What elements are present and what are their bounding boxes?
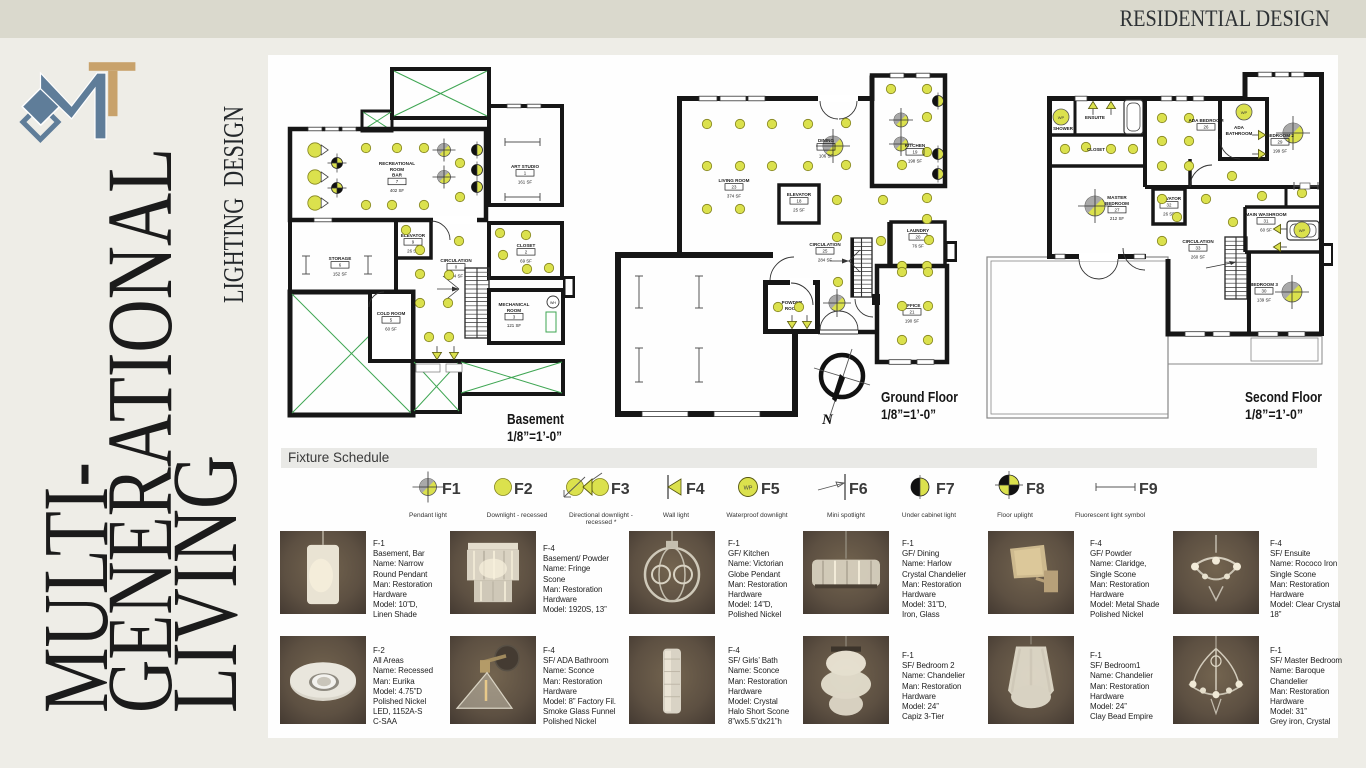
svg-text:Waterproof downlight: Waterproof downlight: [726, 512, 787, 519]
svg-text:BATHROOM: BATHROOM: [1226, 131, 1253, 136]
svg-text:198 SF: 198 SF: [908, 158, 922, 163]
svg-text:F4: F4: [686, 481, 705, 498]
svg-text:KITCHEN: KITCHEN: [905, 143, 926, 148]
svg-text:BAR: BAR: [392, 173, 403, 178]
svg-text:N: N: [821, 412, 834, 428]
svg-text:Mini spotlight: Mini spotlight: [827, 512, 865, 519]
svg-text:69 SF: 69 SF: [520, 258, 532, 263]
svg-text:374 SF: 374 SF: [727, 193, 741, 198]
svg-text:18: 18: [797, 199, 802, 204]
svg-text:21: 21: [910, 310, 915, 315]
svg-text:F1: F1: [442, 481, 461, 498]
svg-text:WP: WP: [744, 486, 753, 492]
svg-text:25 SF: 25 SF: [793, 207, 805, 212]
svg-text:27: 27: [1115, 207, 1120, 212]
svg-text:1: 1: [524, 171, 527, 176]
svg-text:29: 29: [1278, 140, 1283, 145]
svg-text:STORAGE: STORAGE: [329, 256, 352, 261]
svg-text:CIRCULATION: CIRCULATION: [809, 242, 841, 247]
svg-text:CLOSET: CLOSET: [517, 243, 536, 248]
svg-text:LAUNDRY: LAUNDRY: [907, 228, 929, 233]
svg-text:WP: WP: [1241, 110, 1248, 115]
svg-text:121 SF: 121 SF: [507, 323, 521, 328]
svg-text:60 SF: 60 SF: [1260, 227, 1272, 232]
svg-text:Directional downlight -: Directional downlight -: [569, 512, 633, 519]
svg-text:Pendant light: Pendant light: [409, 512, 447, 519]
svg-text:ROOM: ROOM: [507, 308, 521, 313]
svg-text:MASTER: MASTER: [1107, 195, 1127, 200]
svg-text:1/8”=1’-0”: 1/8”=1’-0”: [881, 407, 936, 422]
svg-text:161 SF: 161 SF: [518, 179, 532, 184]
svg-text:Basement: Basement: [507, 411, 564, 428]
svg-text:ELEVATOR: ELEVATOR: [787, 192, 812, 197]
svg-text:BEDROOM 3: BEDROOM 3: [1250, 282, 1278, 287]
svg-text:76 SF: 76 SF: [912, 243, 924, 248]
svg-text:Fluorescent light symbol: Fluorescent light symbol: [1075, 512, 1146, 519]
svg-text:recessed *: recessed *: [586, 519, 617, 526]
svg-text:F9: F9: [1139, 481, 1158, 498]
svg-text:WH: WH: [550, 301, 556, 305]
svg-text:139 SF: 139 SF: [1257, 297, 1271, 302]
svg-text:F2: F2: [514, 481, 533, 498]
svg-text:402 SF: 402 SF: [390, 188, 404, 193]
svg-text:6: 6: [339, 263, 342, 268]
svg-text:WP: WP: [1058, 115, 1065, 120]
svg-text:33: 33: [1196, 246, 1201, 251]
svg-text:MAIN WASHROOM: MAIN WASHROOM: [1245, 212, 1286, 217]
svg-text:23: 23: [732, 185, 737, 190]
svg-text:Second Floor: Second Floor: [1245, 389, 1322, 406]
svg-text:260 SF: 260 SF: [1191, 254, 1205, 259]
svg-text:152 SF: 152 SF: [333, 271, 347, 276]
svg-text:F3: F3: [611, 481, 630, 498]
svg-text:7: 7: [396, 179, 399, 184]
svg-text:32: 32: [1167, 203, 1172, 208]
svg-text:F5: F5: [761, 481, 780, 498]
svg-text:DINING: DINING: [818, 138, 835, 143]
svg-text:30: 30: [1262, 289, 1267, 294]
svg-text:3: 3: [513, 314, 516, 319]
svg-text:9: 9: [412, 240, 415, 245]
svg-text:F8: F8: [1026, 481, 1045, 498]
svg-text:CIRCULATION: CIRCULATION: [1182, 239, 1214, 244]
svg-text:ROOM: ROOM: [390, 167, 404, 172]
svg-text:199 SF: 199 SF: [1273, 148, 1287, 153]
svg-text:2: 2: [525, 250, 528, 255]
svg-text:BEDROOM: BEDROOM: [1105, 201, 1129, 206]
svg-text:Ground Floor: Ground Floor: [881, 389, 958, 406]
svg-text:SHOWER: SHOWER: [1053, 126, 1074, 131]
svg-text:190 SF: 190 SF: [905, 318, 919, 323]
svg-text:106 SF: 106 SF: [819, 153, 833, 158]
svg-text:CLOSET: CLOSET: [1087, 147, 1105, 152]
svg-text:COLD ROOM: COLD ROOM: [377, 311, 406, 316]
svg-text:1/8”=1’-0”: 1/8”=1’-0”: [507, 429, 562, 444]
svg-text:WP: WP: [1299, 228, 1306, 233]
svg-text:Downlight - recessed: Downlight - recessed: [487, 512, 548, 519]
svg-text:ART STUDIO: ART STUDIO: [511, 164, 539, 169]
svg-text:RECREATIONAL: RECREATIONAL: [379, 161, 415, 166]
svg-text:BEDROOM 2: BEDROOM 2: [1266, 133, 1294, 138]
svg-text:ENSUITE: ENSUITE: [1085, 115, 1105, 120]
svg-text:1/8”=1’-0”: 1/8”=1’-0”: [1245, 407, 1303, 422]
svg-text:26: 26: [1204, 125, 1209, 130]
svg-text:MECHANICAL: MECHANICAL: [499, 302, 530, 307]
svg-text:ADA: ADA: [1234, 125, 1245, 130]
svg-text:60 SF: 60 SF: [385, 326, 397, 331]
svg-text:F7: F7: [936, 481, 955, 498]
svg-text:Under cabinet light: Under cabinet light: [902, 512, 956, 519]
svg-text:LIVING ROOM: LIVING ROOM: [719, 178, 750, 183]
svg-text:CIRCULATION: CIRCULATION: [440, 258, 472, 263]
svg-text:Wall light: Wall light: [663, 512, 689, 519]
svg-text:0: 0: [455, 265, 458, 270]
svg-text:31: 31: [1264, 219, 1269, 224]
svg-text:19: 19: [913, 150, 918, 155]
svg-text:Floor uplight: Floor uplight: [997, 512, 1033, 519]
svg-text:284 SF: 284 SF: [818, 257, 832, 262]
svg-text:212 SF: 212 SF: [1110, 216, 1124, 221]
svg-text:25: 25: [823, 249, 828, 254]
svg-text:F6: F6: [849, 481, 868, 498]
svg-text:20: 20: [916, 235, 921, 240]
